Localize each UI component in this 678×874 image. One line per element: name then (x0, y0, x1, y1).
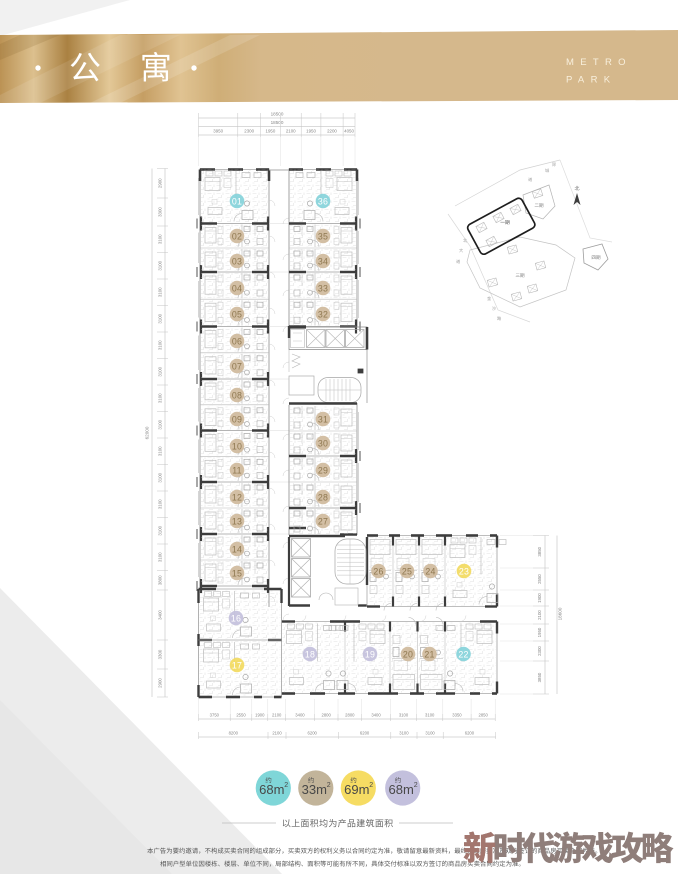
svg-text:3100: 3100 (158, 366, 163, 376)
svg-text:05: 05 (232, 309, 242, 319)
svg-text:2550: 2550 (236, 713, 246, 718)
svg-text:25: 25 (402, 566, 412, 576)
svg-text:6200: 6200 (308, 731, 318, 736)
svg-text:26: 26 (373, 566, 383, 576)
svg-text:3300: 3300 (158, 649, 163, 659)
svg-text:3400: 3400 (371, 713, 381, 718)
svg-text:3100: 3100 (158, 419, 163, 429)
svg-text:2: 2 (369, 782, 373, 789)
svg-text:06: 06 (232, 336, 242, 346)
svg-text:3100: 3100 (425, 713, 435, 718)
svg-text:33m: 33m (302, 782, 327, 797)
svg-text:2: 2 (414, 782, 418, 789)
svg-text:29: 29 (318, 465, 328, 475)
svg-text:METRO: METRO (566, 57, 632, 68)
svg-text:62000: 62000 (145, 426, 150, 439)
svg-text:3750: 3750 (210, 713, 220, 718)
svg-text:3100: 3100 (158, 446, 163, 456)
svg-text:17: 17 (232, 660, 242, 670)
svg-text:3850: 3850 (537, 672, 542, 682)
svg-text:1900: 1900 (255, 713, 265, 718)
svg-text:1950: 1950 (266, 129, 276, 134)
svg-text:18: 18 (305, 649, 315, 659)
svg-text:3300: 3300 (158, 207, 163, 217)
svg-text:22: 22 (458, 649, 468, 659)
svg-text:2900: 2900 (158, 678, 163, 688)
svg-text:6200: 6200 (465, 731, 475, 736)
svg-text:3100: 3100 (158, 234, 163, 244)
svg-text:3100: 3100 (158, 340, 163, 350)
svg-text:11: 11 (232, 465, 242, 475)
svg-text:1900: 1900 (537, 593, 542, 603)
svg-text:2: 2 (327, 782, 331, 789)
svg-text:3100: 3100 (158, 525, 163, 535)
svg-text:2100: 2100 (286, 129, 296, 134)
svg-text:3100: 3100 (158, 499, 163, 509)
svg-text:68m: 68m (259, 782, 284, 797)
svg-text:13: 13 (232, 516, 242, 526)
svg-text:31: 31 (318, 414, 328, 424)
svg-text:33: 33 (318, 283, 328, 293)
svg-text:2100: 2100 (537, 610, 542, 620)
svg-text:36: 36 (318, 196, 328, 206)
svg-text:03: 03 (232, 256, 242, 266)
svg-text:2800: 2800 (345, 713, 355, 718)
svg-text:68m: 68m (389, 782, 414, 797)
svg-text:3350: 3350 (452, 713, 462, 718)
svg-text:15: 15 (232, 568, 242, 578)
svg-text:23: 23 (459, 566, 469, 576)
svg-text:2300: 2300 (537, 646, 542, 656)
svg-text:3400: 3400 (295, 713, 305, 718)
svg-text:21: 21 (424, 649, 434, 659)
svg-text:3100: 3100 (158, 260, 163, 270)
svg-text:2850: 2850 (478, 713, 488, 718)
svg-text:3100: 3100 (158, 552, 163, 562)
svg-text:27: 27 (318, 516, 328, 526)
svg-text:3100: 3100 (158, 472, 163, 482)
svg-text:09: 09 (232, 414, 242, 424)
svg-text:3100: 3100 (158, 313, 163, 323)
svg-text:12: 12 (232, 492, 242, 502)
svg-text:3950: 3950 (213, 129, 223, 134)
svg-text:2200: 2200 (327, 129, 337, 134)
svg-text:1950: 1950 (306, 129, 316, 134)
svg-text:8200: 8200 (229, 731, 239, 736)
svg-text:08: 08 (232, 390, 242, 400)
svg-text:69m: 69m (344, 782, 369, 797)
svg-text:18500: 18500 (271, 112, 284, 117)
svg-text:3400: 3400 (158, 610, 163, 620)
svg-text:3100: 3100 (158, 393, 163, 403)
svg-text:01: 01 (232, 196, 242, 206)
svg-text:18600: 18600 (558, 607, 563, 620)
svg-text:2900: 2900 (158, 178, 163, 188)
svg-text:2300: 2300 (244, 129, 254, 134)
svg-text:3100: 3100 (399, 713, 409, 718)
svg-text:3100: 3100 (158, 287, 163, 297)
svg-text:4050: 4050 (344, 129, 354, 134)
svg-text:34: 34 (318, 256, 328, 266)
svg-text:30: 30 (318, 438, 328, 448)
svg-text:2100: 2100 (272, 713, 282, 718)
svg-text:3100: 3100 (399, 731, 409, 736)
svg-text:2: 2 (284, 782, 288, 789)
svg-text:1950: 1950 (537, 627, 542, 637)
svg-text:19: 19 (365, 649, 375, 659)
svg-text:24: 24 (425, 566, 435, 576)
svg-text:02: 02 (232, 231, 242, 241)
svg-text:3100: 3100 (425, 731, 435, 736)
svg-text:04: 04 (232, 283, 242, 293)
svg-text:14: 14 (232, 544, 242, 554)
svg-text:PARK: PARK (566, 75, 616, 86)
svg-text:28: 28 (318, 492, 328, 502)
svg-text:6200: 6200 (360, 731, 370, 736)
svg-text:32: 32 (318, 309, 328, 319)
svg-text:20: 20 (403, 649, 413, 659)
svg-text:2550: 2550 (537, 574, 542, 584)
svg-text:3800: 3800 (158, 575, 163, 585)
svg-text:35: 35 (318, 231, 328, 241)
svg-text:16: 16 (231, 613, 241, 623)
svg-text:2100: 2100 (272, 731, 282, 736)
svg-text:2800: 2800 (321, 713, 331, 718)
svg-text:07: 07 (232, 361, 242, 371)
svg-text:3850: 3850 (537, 546, 542, 556)
svg-text:10: 10 (232, 441, 242, 451)
svg-text:18500: 18500 (271, 120, 284, 125)
